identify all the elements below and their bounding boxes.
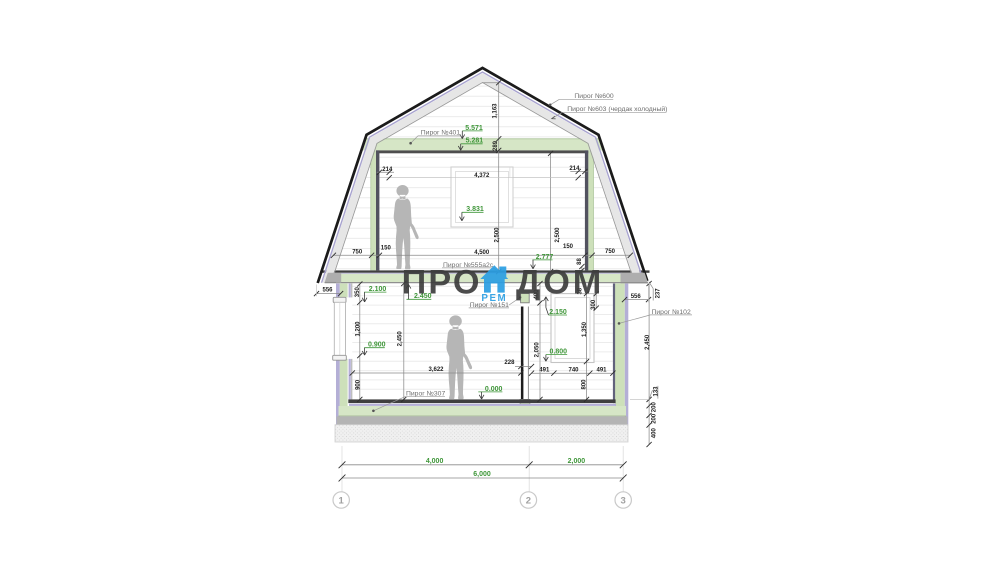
- svg-text:2,500: 2,500: [555, 227, 561, 243]
- svg-text:1,200: 1,200: [356, 321, 362, 337]
- svg-text:491: 491: [596, 367, 607, 373]
- svg-text:3: 3: [621, 495, 626, 506]
- svg-text:2,000: 2,000: [568, 458, 586, 465]
- svg-text:6,000: 6,000: [473, 471, 491, 478]
- svg-text:556: 556: [322, 288, 333, 294]
- svg-text:Пирог №600: Пирог №600: [574, 93, 613, 100]
- svg-text:740: 740: [568, 367, 579, 373]
- svg-text:228: 228: [504, 360, 515, 366]
- svg-text:4,500: 4,500: [474, 250, 490, 256]
- svg-text:ДОМ: ДОМ: [516, 264, 604, 302]
- svg-text:4,372: 4,372: [474, 173, 490, 179]
- svg-text:150: 150: [381, 246, 392, 252]
- svg-text:491: 491: [539, 367, 550, 373]
- svg-text:350: 350: [355, 287, 361, 298]
- svg-text:2: 2: [526, 495, 531, 506]
- svg-text:800: 800: [582, 379, 588, 390]
- svg-text:200: 200: [651, 402, 657, 413]
- svg-text:ПРО: ПРО: [402, 264, 482, 302]
- svg-text:214: 214: [382, 167, 393, 173]
- svg-text:3,622: 3,622: [428, 367, 444, 373]
- svg-text:2,450: 2,450: [645, 334, 651, 350]
- svg-text:2,500: 2,500: [494, 227, 500, 243]
- svg-text:237: 237: [656, 288, 662, 299]
- svg-text:150: 150: [563, 244, 574, 250]
- svg-text:200: 200: [651, 413, 657, 424]
- svg-text:400: 400: [651, 428, 657, 439]
- svg-text:214: 214: [569, 166, 580, 172]
- svg-text:2,450: 2,450: [398, 331, 404, 347]
- svg-text:1,163: 1,163: [493, 103, 499, 119]
- svg-text:1,350: 1,350: [582, 321, 588, 337]
- svg-text:133: 133: [653, 386, 659, 397]
- svg-text:4,000: 4,000: [426, 458, 444, 465]
- svg-text:РЕМ: РЕМ: [481, 293, 507, 304]
- svg-text:1: 1: [339, 495, 345, 506]
- svg-text:750: 750: [352, 249, 363, 255]
- svg-text:750: 750: [605, 249, 616, 255]
- svg-text:289: 289: [493, 140, 499, 151]
- svg-text:Пирог №603 (чердак холодный): Пирог №603 (чердак холодный): [567, 105, 667, 113]
- svg-text:556: 556: [631, 294, 642, 300]
- svg-text:2,050: 2,050: [535, 342, 541, 358]
- svg-text:900: 900: [356, 379, 362, 390]
